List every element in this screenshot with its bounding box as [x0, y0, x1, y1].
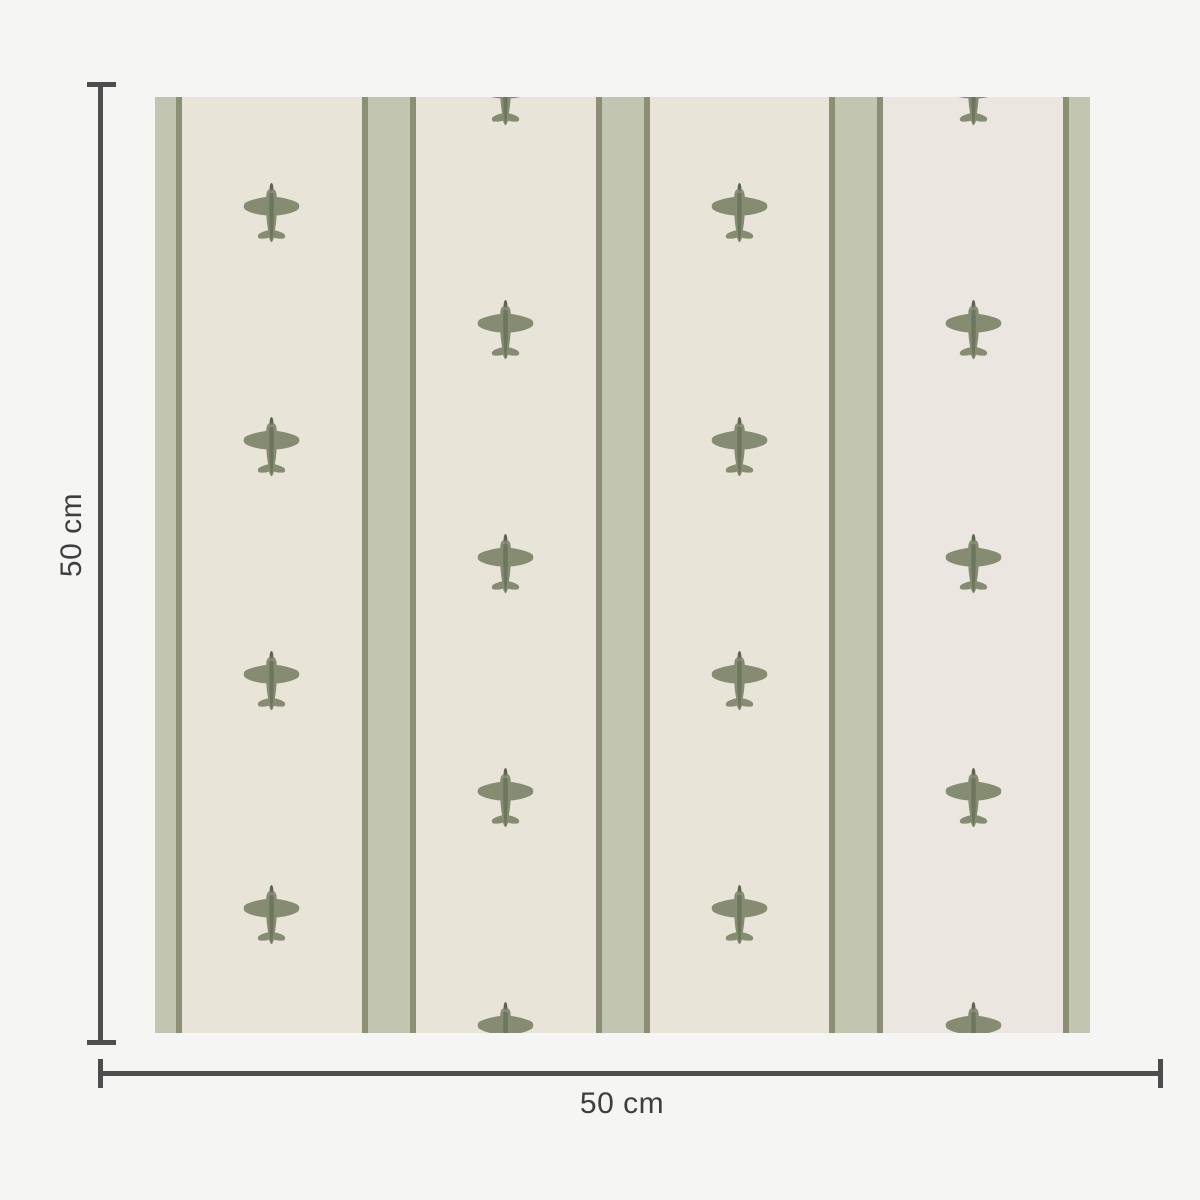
width-dimension-right-cap: [1158, 1059, 1163, 1088]
sage-stripe: [362, 97, 416, 1033]
airplane-icon: [945, 1002, 1002, 1033]
width-dimension-line: [100, 1071, 1163, 1076]
airplane-icon: [243, 885, 300, 945]
sage-stripe: [829, 97, 883, 1033]
airplane-icon: [477, 300, 534, 360]
airplane-icon: [243, 183, 300, 243]
airplane-icon: [243, 651, 300, 711]
airplane-icon: [711, 885, 768, 945]
airplane-icon: [477, 534, 534, 594]
airplane-icon: [945, 768, 1002, 828]
airplane-icon: [945, 534, 1002, 594]
height-dimension-label: 50 cm: [54, 475, 90, 595]
airplane-icon: [945, 97, 1002, 126]
airplane-icon: [711, 651, 768, 711]
sage-stripe: [596, 97, 650, 1033]
height-dimension-line: [98, 84, 103, 1045]
width-dimension-label: 50 cm: [522, 1086, 722, 1122]
airplane-icon: [477, 97, 534, 126]
product-dimension-illustration: 50 cm 50 cm: [0, 0, 1200, 1200]
airplane-icon: [477, 1002, 534, 1033]
airplane-icon: [477, 768, 534, 828]
airplane-icon: [711, 417, 768, 477]
airplane-icon: [945, 300, 1002, 360]
wallpaper-swatch: [155, 97, 1090, 1033]
airplane-icon: [243, 417, 300, 477]
height-dimension-bottom-cap: [87, 1040, 116, 1045]
sage-stripe: [155, 97, 182, 1033]
airplane-icon: [711, 183, 768, 243]
sage-stripe: [1063, 97, 1090, 1033]
